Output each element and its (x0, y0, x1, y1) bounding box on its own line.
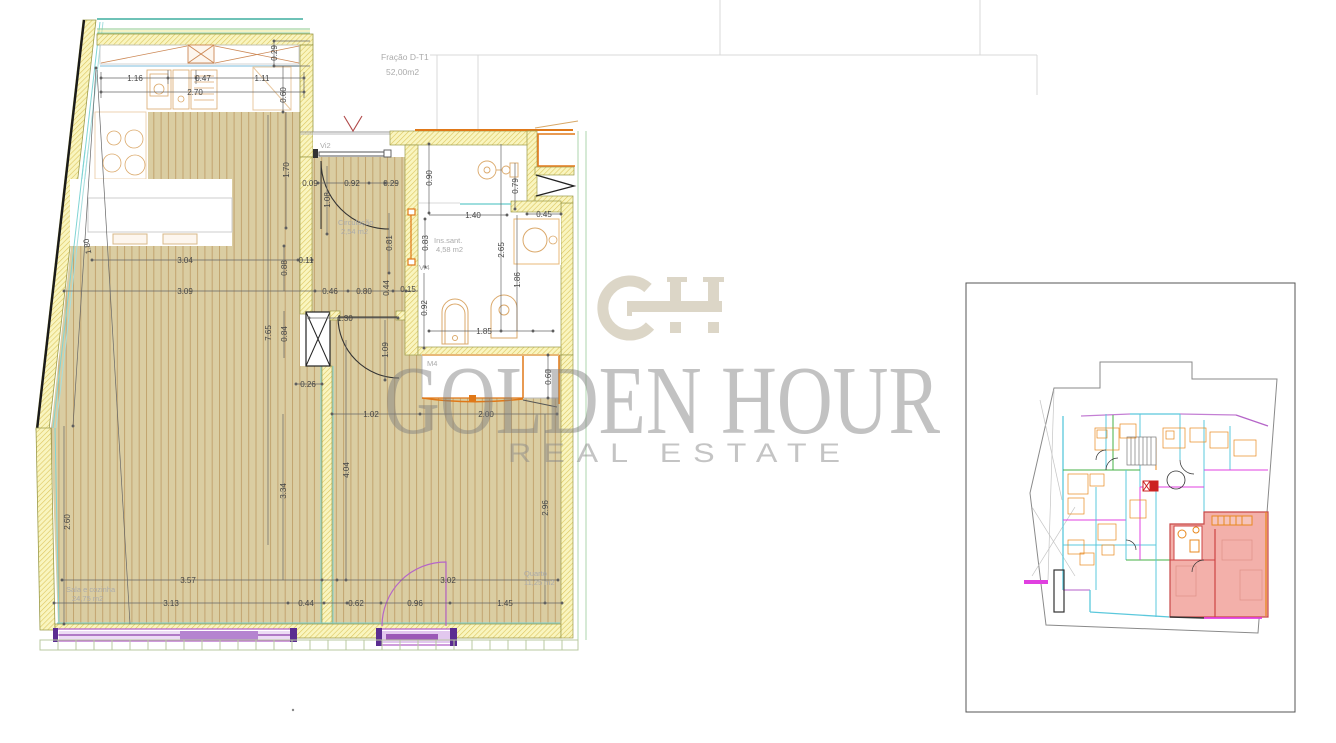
svg-text:24,75 m2: 24,75 m2 (72, 594, 103, 603)
svg-text:1.45: 1.45 (497, 599, 513, 608)
svg-text:1.40: 1.40 (465, 211, 481, 220)
svg-text:0.79: 0.79 (511, 178, 520, 194)
svg-text:REAL ESTATE: REAL ESTATE (508, 438, 852, 468)
svg-text:3.09: 3.09 (177, 287, 193, 296)
svg-text:1.16: 1.16 (127, 74, 143, 83)
svg-text:2.70: 2.70 (187, 88, 203, 97)
svg-text:2.65: 2.65 (497, 242, 506, 258)
svg-text:0.47: 0.47 (195, 74, 211, 83)
svg-text:4,58 m2: 4,58 m2 (436, 245, 463, 254)
svg-text:0.90: 0.90 (425, 170, 434, 186)
svg-text:0.29: 0.29 (270, 45, 279, 61)
svg-text:0.44: 0.44 (382, 280, 391, 296)
svg-text:1.86: 1.86 (513, 272, 522, 288)
svg-text:0.45: 0.45 (536, 210, 552, 219)
svg-text:11,25 m2: 11,25 m2 (524, 578, 555, 587)
svg-text:0.96: 0.96 (407, 599, 423, 608)
svg-text:0.80: 0.80 (356, 287, 372, 296)
svg-text:2.96: 2.96 (541, 500, 550, 516)
svg-text:4.04: 4.04 (342, 462, 351, 478)
svg-text:Vi2: Vi2 (320, 141, 331, 150)
svg-text:1.08: 1.08 (323, 192, 332, 208)
svg-text:3.02: 3.02 (440, 576, 456, 585)
svg-text:0.60: 0.60 (279, 87, 288, 103)
svg-text:0.81: 0.81 (385, 235, 394, 251)
svg-text:Vi4: Vi4 (419, 263, 430, 272)
svg-text:0.29: 0.29 (383, 179, 399, 188)
svg-text:0.92: 0.92 (420, 300, 429, 316)
svg-text:0.62: 0.62 (348, 599, 364, 608)
svg-text:1.70: 1.70 (282, 162, 291, 178)
svg-text:1.30: 1.30 (337, 314, 353, 323)
svg-text:Circulação: Circulação (338, 218, 373, 227)
svg-text:Sala e cozinha: Sala e cozinha (66, 585, 116, 594)
svg-text:2,54 m2: 2,54 m2 (341, 227, 368, 236)
svg-text:3.34: 3.34 (279, 483, 288, 499)
svg-text:0.44: 0.44 (298, 599, 314, 608)
svg-text:0.83: 0.83 (421, 235, 430, 251)
svg-text:0.92: 0.92 (344, 179, 360, 188)
svg-text:Fração D-T1: Fração D-T1 (381, 52, 429, 62)
svg-text:1.11: 1.11 (255, 74, 271, 83)
svg-text:0.46: 0.46 (322, 287, 338, 296)
svg-text:3.04: 3.04 (177, 256, 193, 265)
svg-text:7.65: 7.65 (264, 325, 273, 341)
svg-text:0.09: 0.09 (302, 179, 318, 188)
svg-text:1.85: 1.85 (476, 327, 492, 336)
svg-text:3.57: 3.57 (180, 576, 196, 585)
svg-text:Quarto: Quarto (524, 569, 547, 578)
svg-text:0.88: 0.88 (280, 260, 289, 276)
svg-text:0.84: 0.84 (280, 326, 289, 342)
svg-text:0.11: 0.11 (299, 256, 315, 265)
svg-text:2.60: 2.60 (63, 514, 72, 530)
svg-text:Ins.sant.: Ins.sant. (434, 236, 462, 245)
svg-text:1.02: 1.02 (363, 410, 379, 419)
svg-text:52,00m2: 52,00m2 (386, 67, 419, 77)
svg-text:0.26: 0.26 (300, 380, 316, 389)
svg-text:3.13: 3.13 (163, 599, 179, 608)
svg-text:0.15: 0.15 (400, 285, 416, 294)
